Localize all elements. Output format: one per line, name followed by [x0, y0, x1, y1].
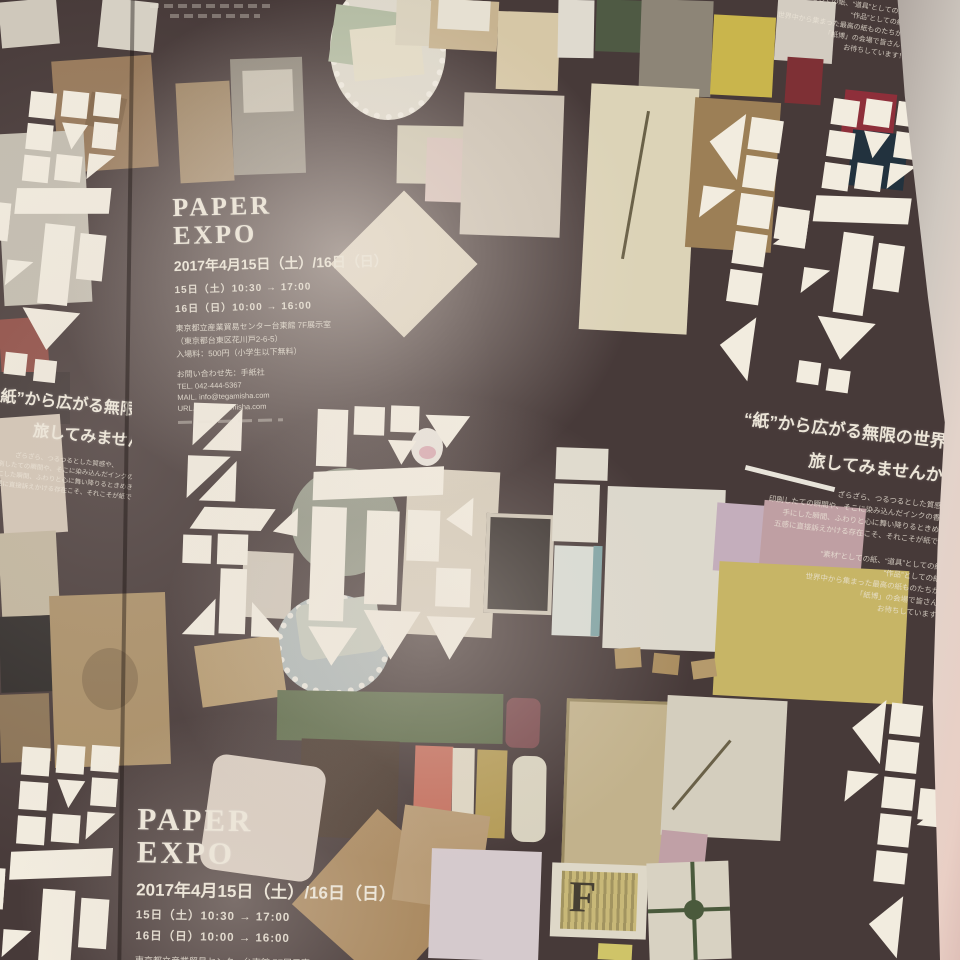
- collage-letterpress-tray: [483, 513, 554, 615]
- collage-figure-card: [552, 483, 600, 543]
- collage-kraft-chip-a: [614, 647, 641, 669]
- collage-teal-stripe: [590, 546, 602, 636]
- letter-f: F: [568, 873, 597, 922]
- collage-kraft-chip-c: [691, 658, 717, 679]
- collage-botanical-sheet-bottom: [660, 695, 787, 841]
- collage-maroon-roll: [505, 697, 541, 748]
- event-date: 2017年4月15日（土）/16日（日）: [174, 250, 409, 276]
- poster-title-expo: EXPO: [173, 217, 409, 249]
- collage-white-card-top: [557, 0, 594, 58]
- collage-dark-box-left: [0, 615, 55, 693]
- cut-text-top-b: [170, 14, 260, 18]
- collage-vintage-book: [561, 698, 671, 870]
- kanji-haku-artwork-3: [0, 730, 121, 960]
- event-time-saturday-2: 15日（土）10:30 → 17:00: [136, 906, 446, 927]
- collage-kraft-bag: [175, 81, 234, 184]
- collage-rounded-bookmark: [511, 756, 546, 843]
- collage-floral-card-top: [496, 11, 561, 91]
- collage-gray-frame-inner: [242, 69, 293, 113]
- kanji-haku-artwork-1: [668, 74, 927, 409]
- collage-kraft-chip-b: [652, 653, 680, 676]
- twine-envelope: [646, 861, 731, 960]
- cut-text-top-a: [150, 4, 270, 8]
- collage-white-papers-mid: [460, 92, 565, 237]
- event-time-sunday: 16日（日）10:00 → 16:00: [175, 294, 410, 315]
- letter-f-specimen-card: F: [550, 862, 649, 939]
- tagline-fragment-left: “紙”から広がる無限の世界を 旅してみませんか？ ざらざら、つるつるとした質感や…: [0, 382, 132, 542]
- tagline-fragment-line2: 旅してみませんか？: [32, 417, 128, 451]
- body-fragment-left: ざらざら、つるつるとした質感や、 印刷したての瞬間や、そこに染み込んだインクの香…: [0, 449, 118, 502]
- event-date-2: 2017年4月15日（土）/16日（日）: [136, 875, 446, 905]
- collage-olive-band: [277, 690, 504, 744]
- event-time-sunday-2: 16日（日）10:00 → 16:00: [135, 927, 445, 948]
- info-block-top: PAPER EXPO 2017年4月15日（土）/16日（日） 15日（土）10…: [172, 189, 413, 424]
- twine-bow: [684, 899, 705, 920]
- bamboo-mat: F: [560, 871, 638, 932]
- poster-title-paper: PAPER: [172, 189, 408, 221]
- info-block-bottom: PAPER EXPO 2017年4月15日（土）/16日（日） 15日（土）10…: [134, 803, 447, 960]
- poster-title-expo-2: EXPO: [137, 836, 447, 872]
- collage-envelope-fold-white: [437, 0, 490, 31]
- venue-name-2: 東京都立産業貿易センター台東館 7F展示室: [135, 953, 445, 960]
- collage-green-band-top: [595, 0, 645, 53]
- tagline-fragment-line1: “紙”から広がる無限の世界を: [0, 382, 131, 420]
- collage-yellow-tag: [598, 943, 633, 960]
- collage-fragment-white-a: [0, 0, 60, 48]
- kanji-shi-artwork: [170, 398, 484, 683]
- collage-small-sketch-card: [555, 447, 608, 481]
- photo-of-paper-expo-posters: F: [0, 0, 960, 960]
- tagline-block-right: “紙”から広がる無限の世界を 旅してみませんか？ ざらざら、つるつるとした質感や…: [680, 400, 960, 623]
- event-time-saturday: 15日（土）10:30 → 17:00: [174, 275, 409, 296]
- collage-cup-sketch: [82, 648, 138, 710]
